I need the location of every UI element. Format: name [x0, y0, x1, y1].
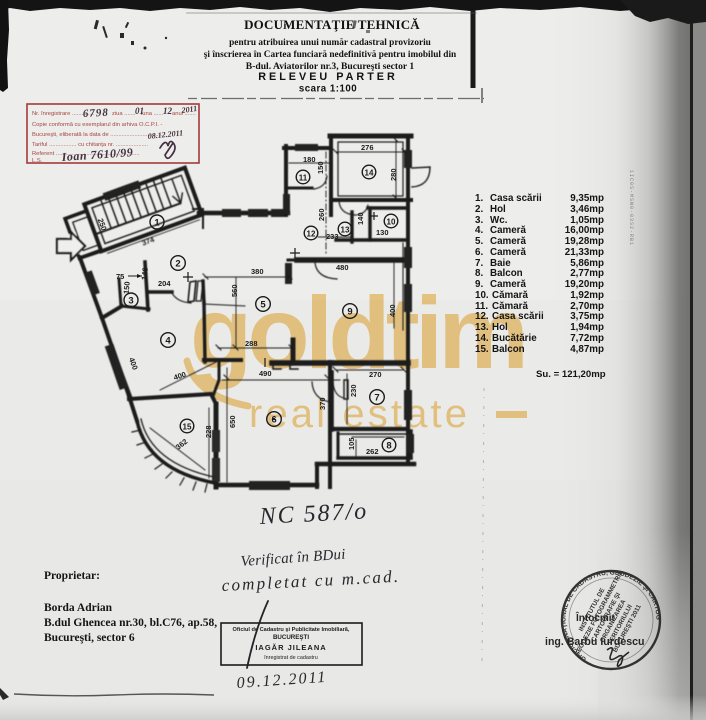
svg-text:15.: 15. — [475, 344, 489, 355]
svg-text:Hol: Hol — [490, 204, 506, 215]
svg-text:560: 560 — [230, 284, 239, 297]
svg-text:262: 262 — [366, 447, 379, 456]
svg-text:Cameră: Cameră — [490, 279, 526, 290]
svg-text:370: 370 — [318, 397, 327, 410]
svg-text:105: 105 — [347, 437, 356, 450]
svg-text:3: 3 — [128, 296, 133, 307]
svg-text:1: 1 — [154, 218, 160, 229]
svg-text:Oficiul de Cadastru şi Publici: Oficiul de Cadastru şi Publicitate Imobi… — [233, 627, 350, 633]
svg-text:1,92mp: 1,92mp — [570, 290, 604, 301]
svg-text:12.: 12. — [475, 311, 489, 322]
svg-text:490: 490 — [259, 369, 272, 378]
svg-text:Proprietar:: Proprietar: — [44, 570, 100, 582]
svg-text:400: 400 — [388, 304, 397, 317]
svg-text:BUCUREŞTI: BUCUREŞTI — [273, 634, 309, 641]
svg-text:9.: 9. — [475, 279, 483, 290]
svg-text:140: 140 — [356, 212, 365, 225]
svg-text:şi înscrierea în Cartea funcia: şi înscrierea în Cartea funciară nedefin… — [204, 50, 457, 60]
svg-text:B.dul Ghencea nr.30, bl.C76, a: B.dul Ghencea nr.30, bl.C76, ap.58, — [44, 617, 217, 629]
svg-text:Casa scării: Casa scării — [492, 311, 544, 322]
svg-text:1,94mp: 1,94mp — [570, 322, 604, 333]
svg-text:Balcon: Balcon — [492, 344, 525, 355]
svg-text:6798: 6798 — [83, 107, 110, 120]
svg-text:1IC0S-MSN0-03S2-RB1: 1IC0S-MSN0-03S2-RB1 — [628, 170, 634, 246]
svg-text:14: 14 — [365, 169, 374, 178]
svg-text:5.: 5. — [475, 236, 483, 247]
svg-text:Cameră: Cameră — [490, 236, 526, 247]
svg-text:2: 2 — [175, 259, 180, 270]
svg-text:19,20mp: 19,20mp — [565, 279, 604, 290]
svg-text:2.: 2. — [475, 204, 483, 215]
svg-text:228: 228 — [204, 425, 213, 438]
svg-text:Borda Adrian: Borda Adrian — [44, 602, 113, 614]
svg-text:11: 11 — [299, 174, 308, 183]
svg-text:270: 270 — [369, 370, 382, 379]
svg-text:Hol: Hol — [492, 322, 508, 333]
svg-text:8: 8 — [386, 441, 391, 452]
svg-text:7: 7 — [374, 393, 379, 404]
svg-text:75: 75 — [116, 272, 124, 281]
svg-text:150: 150 — [316, 161, 325, 174]
svg-text:21,33mp: 21,33mp — [565, 247, 604, 258]
svg-text:16,00mp: 16,00mp — [565, 225, 604, 236]
svg-text:înregistrat de cadastru: înregistrat de cadastru — [263, 655, 318, 661]
svg-text:9,35mp: 9,35mp — [570, 193, 604, 204]
svg-text:6.: 6. — [475, 247, 483, 258]
svg-text:Bucureşti, eliberată la data d: Bucureşti, eliberată la data de ........… — [32, 132, 164, 138]
svg-text:Copie conformă cu exemplarul d: Copie conformă cu exemplarul din arhiva … — [32, 122, 162, 128]
svg-text:luna ......: luna ...... — [141, 111, 164, 117]
svg-text:Bucureşti, sector 6: Bucureşti, sector 6 — [44, 632, 135, 644]
svg-text:650: 650 — [228, 415, 237, 428]
svg-text:4: 4 — [165, 336, 171, 347]
svg-text:DOCUMENTAŢIE TEHNICĂ: DOCUMENTAŢIE TEHNICĂ — [244, 17, 420, 32]
svg-text:7,72mp: 7,72mp — [570, 333, 604, 344]
svg-text:01: 01 — [135, 106, 144, 116]
svg-text:8.: 8. — [475, 268, 483, 279]
svg-text:4.: 4. — [475, 225, 483, 236]
svg-text:380: 380 — [251, 267, 264, 276]
svg-text:12: 12 — [163, 106, 173, 116]
svg-text:260: 260 — [317, 208, 326, 221]
svg-text:Întocmit: Întocmit — [575, 611, 616, 624]
svg-text:9: 9 — [347, 307, 352, 318]
svg-text:14.: 14. — [475, 333, 489, 344]
svg-text:1.: 1. — [475, 193, 483, 204]
svg-text:Cămară: Cămară — [492, 290, 528, 301]
svg-text:pentru atribuirea unui număr c: pentru atribuirea unui număr cadastral p… — [229, 38, 431, 48]
svg-text:146: 146 — [140, 267, 150, 280]
svg-text:276: 276 — [361, 143, 374, 152]
svg-text:180: 180 — [303, 155, 316, 164]
svg-text:Cameră: Cameră — [490, 225, 526, 236]
svg-text:scara 1:100: scara 1:100 — [299, 84, 357, 95]
svg-text:204: 204 — [158, 279, 171, 288]
svg-text:230: 230 — [349, 384, 358, 397]
svg-text:13.: 13. — [475, 322, 489, 333]
svg-text:IAGĂR JILEANA: IAGĂR JILEANA — [255, 643, 326, 652]
svg-text:288: 288 — [245, 339, 258, 348]
svg-text:RELEVEU PARTER: RELEVEU PARTER — [258, 71, 398, 83]
svg-text:10.: 10. — [475, 290, 489, 301]
svg-text:233: 233 — [326, 232, 339, 241]
svg-text:2,77mp: 2,77mp — [570, 268, 604, 279]
svg-text:4,87mp: 4,87mp — [570, 344, 604, 355]
svg-text:12: 12 — [307, 230, 316, 239]
svg-text:280: 280 — [389, 168, 398, 181]
svg-text:10: 10 — [387, 218, 396, 227]
svg-text:15: 15 — [183, 423, 192, 432]
svg-text:ziua .......: ziua ....... — [112, 111, 136, 117]
svg-text:19,28mp: 19,28mp — [565, 236, 604, 247]
svg-text:Su. = 121,20mp: Su. = 121,20mp — [536, 369, 606, 380]
svg-text:ing. Barbu Iurdescu: ing. Barbu Iurdescu — [545, 636, 644, 648]
svg-text:Balcon: Balcon — [490, 268, 523, 279]
svg-text:Bucătărie: Bucătărie — [492, 333, 537, 344]
svg-text:3,46mp: 3,46mp — [570, 204, 604, 215]
svg-text:150: 150 — [122, 281, 132, 294]
svg-text:13: 13 — [341, 226, 350, 235]
svg-text:Cameră: Cameră — [490, 247, 526, 258]
svg-text:480: 480 — [336, 263, 349, 272]
svg-text:L.S.: L.S. — [32, 158, 43, 164]
svg-text:Casa scării: Casa scării — [490, 193, 542, 204]
svg-text:130: 130 — [376, 228, 389, 237]
svg-text:3,75mp: 3,75mp — [570, 311, 604, 322]
svg-text:5: 5 — [260, 300, 266, 311]
